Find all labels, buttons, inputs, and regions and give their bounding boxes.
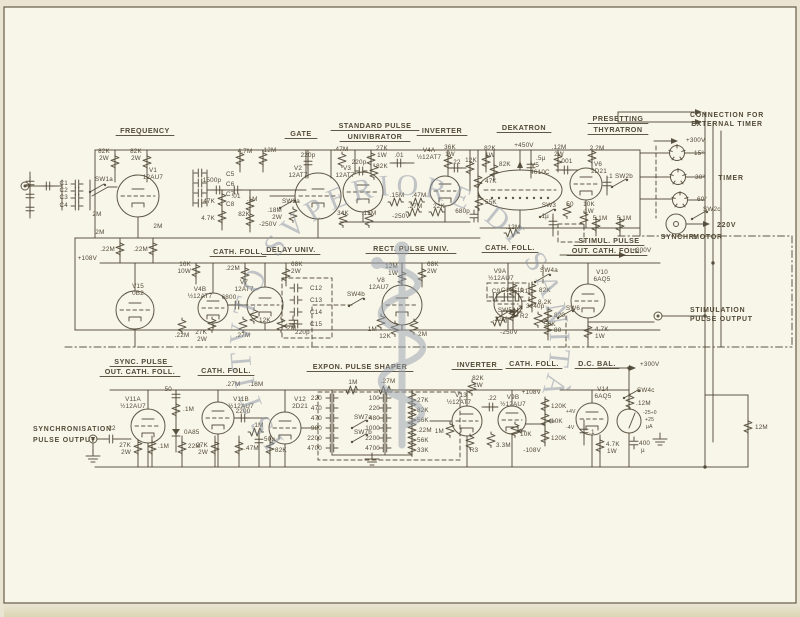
component-label: 220p (295, 329, 310, 336)
component-label: +300V (686, 137, 706, 144)
section-header: PRESETTING (593, 114, 644, 123)
component-label: SW1a (95, 176, 113, 183)
section-header: GATE (290, 129, 311, 138)
component-label: 400 (639, 440, 650, 447)
component-label: +25 (645, 417, 654, 423)
component-label: ½12AU7 (120, 402, 146, 410)
component-label: 68K (291, 261, 303, 268)
component-label: -25÷0 (643, 410, 657, 416)
component-label: 1W (485, 152, 495, 159)
component-label: 10K (583, 201, 595, 208)
component-label: 2W (291, 268, 301, 275)
component-label: V12 (294, 396, 306, 403)
component-label: 1W (377, 152, 387, 159)
component-label: 33K (417, 447, 429, 454)
component-label: 82K (499, 161, 511, 168)
component-label: 220p (352, 159, 367, 166)
component-label: .1 (589, 429, 595, 436)
component-label: .1M (183, 406, 194, 413)
component-label: SW2a (282, 198, 300, 205)
component-label: 1M (435, 428, 444, 435)
component-label: .27M (408, 203, 423, 210)
component-label: V13 (455, 392, 467, 399)
external-timer-label-1: CONNECTION FOR (690, 112, 764, 119)
component-label: V4A (423, 147, 436, 154)
component-label: 470 (311, 405, 322, 412)
component-label: 1µ (541, 213, 549, 220)
component-label: 15° (694, 149, 704, 157)
component-label: 2W (198, 449, 208, 456)
synchr-motor-label-2: MOTOR (693, 234, 723, 241)
component-label: ½12AT7 (447, 398, 472, 406)
synchronisation-output-label-1: SYNCHRONISATION (33, 426, 112, 433)
component-label: 30° (695, 173, 705, 181)
component-label: +4V (566, 409, 576, 415)
component-label: 2200 (307, 435, 322, 442)
dekatron-cathode-dot (498, 197, 500, 199)
component-label: 36K (444, 144, 456, 151)
component-label: 2W (427, 268, 437, 275)
component-label: C5 (226, 171, 235, 178)
component-label: SW5 (498, 307, 513, 314)
component-label: 56K (417, 437, 429, 444)
component-label: 2D21 (292, 403, 308, 410)
component-label: ½12AT7 (188, 292, 213, 300)
component-label: C1 (60, 180, 69, 187)
component-label: 82K (275, 447, 287, 454)
component-label: SW2c (703, 206, 721, 213)
switch-contact (691, 218, 693, 220)
component-label: 1W (473, 382, 483, 389)
component-label: C6 (226, 181, 235, 188)
component-label: .1M (158, 443, 169, 450)
component-label: SW4c (637, 387, 655, 394)
component-label: C3 (60, 194, 69, 201)
dekatron-cathode-dot (540, 197, 542, 199)
component-label: 1W (607, 448, 617, 455)
section-header: THYRATRON (593, 125, 642, 134)
switch-contact (351, 441, 353, 443)
section-header: UNIVIBRATOR (348, 132, 403, 141)
component-label: 27K (376, 145, 388, 152)
component-label: .18M (267, 207, 282, 214)
component-label: V9A (494, 268, 507, 275)
component-label: 480 (369, 415, 380, 422)
photo-bottom-edge (4, 604, 800, 617)
component-label: 2M (92, 211, 101, 218)
component-label: 82K (238, 211, 250, 218)
section-header: INVERTER (422, 126, 463, 135)
component-label: 47K (203, 198, 215, 205)
component-label: 220 (311, 395, 322, 402)
component-label: 3.3M (496, 442, 511, 449)
component-label: 1W (584, 208, 594, 215)
component-label: 82K (98, 148, 110, 155)
component-label: 12AT7 (288, 172, 307, 179)
component-label: 82K (484, 145, 496, 152)
component-label: -4V (566, 425, 575, 431)
component-label: V1 (149, 167, 157, 174)
component-label: C8 (226, 201, 235, 208)
component-label: ½12AU7 (500, 400, 526, 408)
component-label: 1M (348, 379, 357, 386)
component-label: 220p (301, 152, 316, 159)
mains-voltage-label: 220V (717, 222, 736, 229)
component-label: .22M (225, 265, 240, 272)
component-label: 12AU7 (369, 284, 390, 291)
circuit-schematic: FREQUENCYGATESTANDARD PULSEUNIVIBRATORIN… (0, 0, 800, 617)
dekatron-cathode-dot (519, 197, 521, 199)
dekatron-cathode-dot (505, 197, 507, 199)
component-label: 4700 (307, 445, 322, 452)
component-label: 12K (259, 317, 271, 324)
component-label: .22M (100, 246, 115, 253)
dekatron-cathode-dot (512, 197, 514, 199)
component-label: .001 (559, 158, 572, 165)
component-label: 470 (311, 415, 322, 422)
section-header: SYNC. PULSE (114, 357, 167, 366)
component-label: C12 (310, 285, 322, 292)
switch-contact (611, 186, 613, 188)
component-label: 1W (445, 151, 455, 158)
component-label: C4 (60, 202, 69, 209)
component-label: 12AU7 (143, 174, 164, 181)
component-label: 27K (195, 329, 207, 336)
section-header: OUT. CATH. FOLL. (105, 367, 176, 376)
component-label: 68K (427, 261, 439, 268)
component-label: SW2b (615, 173, 633, 180)
component-label: SW4b (347, 291, 365, 298)
switch-contact (104, 184, 106, 186)
dekatron-cathode-dot (533, 197, 535, 199)
component-label: 2200 (365, 435, 380, 442)
component-label: 10K (520, 431, 532, 438)
component-label: 120K (551, 435, 567, 442)
component-label: SW3 (542, 202, 557, 209)
component-label: 82K (472, 375, 484, 382)
component-label: V14 (597, 386, 609, 393)
component-label: .12M (552, 144, 567, 151)
component-label: 2D21 (591, 168, 607, 175)
component-label: V9B (507, 394, 520, 401)
switch-contact (351, 427, 353, 429)
component-label: µA (646, 424, 653, 430)
terminal-center (24, 185, 27, 188)
component-label: 12K (379, 333, 391, 340)
component-label: C15 (310, 321, 322, 328)
component-label: C14 (310, 309, 322, 316)
switch-contact (363, 298, 365, 300)
component-label: 2W (197, 336, 207, 343)
component-label: V5 (531, 162, 539, 169)
component-label: 2M (153, 223, 162, 230)
component-label: 4.7K (201, 215, 215, 222)
component-label: 220 (369, 405, 380, 412)
component-label: 10W (177, 268, 191, 275)
section-header: RECT. PULSE UNIV. (373, 244, 449, 253)
component-label: ½12AT7 (417, 153, 442, 161)
component-label: V15 (132, 283, 144, 290)
component-label: 2M (95, 229, 104, 236)
component-label: .22M (133, 246, 148, 253)
component-label: C2 (60, 187, 69, 194)
component-label: 1M (368, 326, 377, 333)
component-label: .22M (417, 427, 432, 434)
component-label: +300V (632, 247, 652, 254)
section-header: STANDARD PULSE (339, 121, 412, 130)
component-label: 0A85 (184, 429, 200, 436)
component-label: V8 (377, 277, 385, 284)
component-label: .22M (493, 316, 508, 323)
section-header: STIMUL. PULSE (578, 236, 639, 245)
photographed-schematic: FREQUENCYGATESTANDARD PULSEUNIVIBRATORIN… (0, 0, 800, 617)
component-label: .01 (231, 193, 241, 200)
component-label: 27K (196, 442, 208, 449)
component-label: 0B2 (132, 290, 144, 297)
synchronisation-output-label-2: PULSE OUTPUT (33, 437, 96, 444)
component-label: 2.2M (590, 145, 605, 152)
component-label: 4.7K (606, 441, 620, 448)
stimulation-output-label-2: PULSE OUTPUT (690, 316, 753, 323)
component-label: µ (641, 447, 645, 454)
component-label: 4700 (365, 445, 380, 452)
switch-contact (348, 305, 350, 307)
section-header: INVERTER (457, 360, 498, 369)
stimulation-output-label-1: STIMULATION (690, 307, 745, 314)
component-label: 1000 (365, 425, 380, 432)
junction-dot (711, 261, 714, 264)
section-header: D.C. BAL. (578, 359, 616, 368)
component-label: R2 (520, 313, 529, 320)
component-label: V3 (343, 165, 351, 172)
component-label: 4610C (530, 169, 550, 176)
section-header: DEKATRON (502, 123, 546, 132)
component-label: 60° (697, 195, 707, 203)
section-header: FREQUENCY (120, 126, 170, 135)
component-label: .47M (334, 146, 349, 153)
component-label: 50 (566, 201, 574, 208)
component-label: 4.7K (595, 326, 609, 333)
dekatron-cathode-dot (547, 197, 549, 199)
component-label: 6AQ5 (594, 276, 611, 283)
component-label: 1500p (203, 177, 222, 184)
component-label: .22M (175, 332, 190, 339)
component-label: ½12AU7 (488, 274, 514, 282)
component-label: 50 (165, 386, 173, 393)
component-label: 2W (131, 155, 141, 162)
component-label: V4B (194, 286, 207, 293)
component-label: 980 (311, 425, 322, 432)
component-label: 2W (554, 151, 564, 158)
component-label: 2W (99, 155, 109, 162)
component-label: -108V (523, 447, 541, 454)
component-label: R3 (470, 447, 479, 454)
component-label: 1W (595, 333, 605, 340)
component-label: .1M (246, 196, 257, 203)
component-label: .01 (394, 152, 404, 159)
switch-contact (89, 191, 91, 193)
component-label: 82K (130, 148, 142, 155)
dekatron-cathode-dot (526, 197, 528, 199)
component-label: C13 (310, 297, 322, 304)
component-label: 16K (179, 261, 191, 268)
component-label: R1 (520, 288, 529, 295)
component-label: 6AQ5 (595, 393, 612, 400)
component-label: .12M (262, 147, 277, 154)
component-label: 12M (755, 424, 768, 431)
switch-contact (554, 209, 556, 211)
component-label: 5.1M (593, 215, 608, 222)
junction-dot (703, 465, 706, 468)
external-timer-label-2: EXTERNAL TIMER (691, 121, 763, 128)
component-label: 5.1M (617, 215, 632, 222)
component-label: 47K (485, 178, 497, 185)
terminal-center (657, 315, 660, 318)
component-label: +300V (640, 361, 660, 368)
component-label: .22 (487, 395, 497, 402)
component-label: V11A (125, 396, 141, 403)
component-label: V10 (596, 269, 608, 276)
component-label: C9 (492, 288, 501, 295)
component-label: .1 (607, 173, 613, 180)
component-label: V2 (294, 165, 302, 172)
component-label: .12M (636, 400, 651, 407)
switch-contact (623, 397, 625, 399)
component-label: +108V (78, 255, 98, 262)
component-label: 82K (376, 163, 388, 170)
component-label: V6 (594, 161, 602, 168)
timer-label: TIMER (718, 175, 743, 182)
component-label: 100 (369, 395, 380, 402)
component-label: -250V (500, 329, 518, 336)
component-label: 4.7M (238, 148, 253, 155)
component-label: 2W (121, 449, 131, 456)
component-label: 10K (551, 418, 563, 425)
component-label: .22 (451, 159, 461, 166)
component-label: 12K (465, 157, 477, 164)
component-label: +450V (514, 142, 534, 149)
component-label: .5µ (536, 155, 546, 162)
component-label: .15M (362, 210, 377, 217)
component-label: -250V (392, 213, 410, 220)
synchr-motor-label-1: SYNCHR. (661, 234, 698, 241)
component-label: 27K (119, 442, 131, 449)
